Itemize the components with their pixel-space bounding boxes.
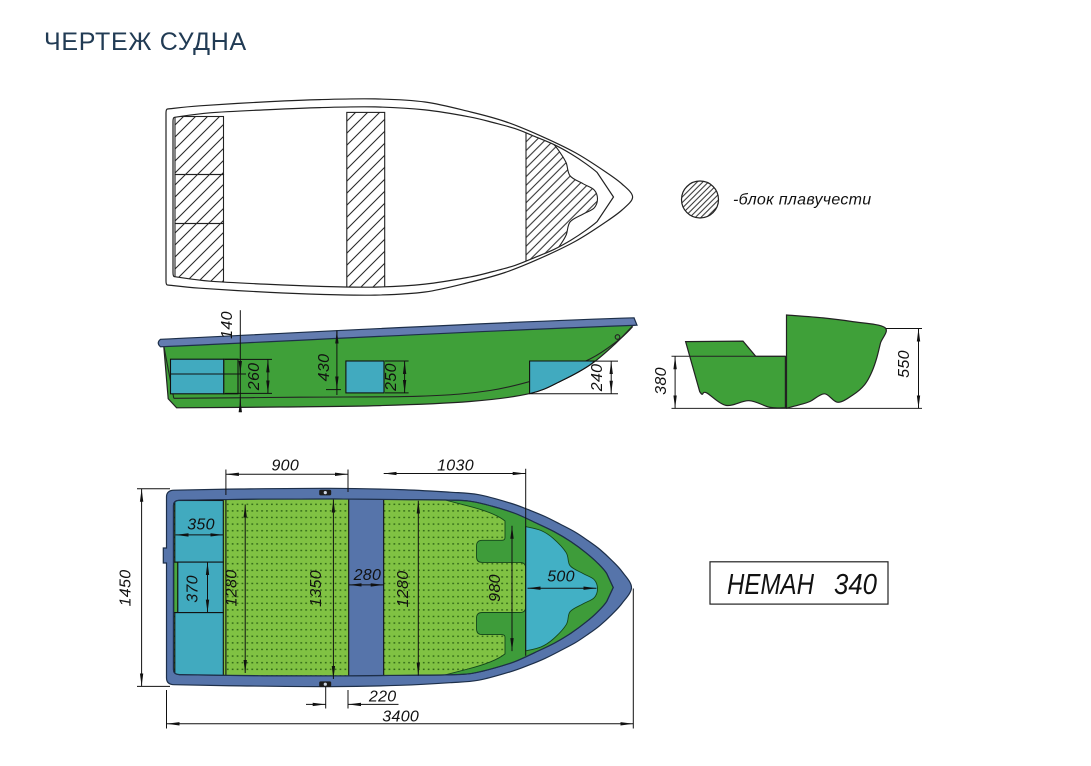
svg-text:370: 370	[185, 575, 202, 603]
svg-text:280: 280	[353, 567, 382, 584]
svg-text:980: 980	[487, 574, 504, 602]
svg-text:430: 430	[316, 354, 333, 382]
svg-text:1350: 1350	[308, 570, 325, 607]
svg-text:1280: 1280	[224, 570, 241, 607]
svg-text:220: 220	[368, 688, 397, 705]
svg-text:1030: 1030	[437, 458, 474, 475]
svg-text:900: 900	[271, 458, 299, 475]
svg-text:350: 350	[187, 517, 215, 534]
svg-text:140: 140	[219, 311, 236, 339]
svg-text:3400: 3400	[382, 709, 419, 726]
svg-text:240: 240	[589, 364, 606, 393]
svg-text:500: 500	[547, 568, 575, 585]
svg-text:380: 380	[653, 367, 670, 395]
svg-text:340: 340	[834, 569, 877, 601]
svg-text:НЕМАН: НЕМАН	[727, 569, 814, 601]
svg-text:1450: 1450	[118, 570, 135, 607]
svg-text:550: 550	[896, 350, 913, 378]
svg-text:-блок плавучести: -блок плавучести	[733, 192, 871, 209]
svg-text:1280: 1280	[395, 571, 412, 608]
svg-text:ЧЕРТЕЖ СУДНА: ЧЕРТЕЖ СУДНА	[44, 28, 247, 56]
svg-text:260: 260	[246, 363, 263, 392]
svg-text:250: 250	[383, 363, 400, 392]
